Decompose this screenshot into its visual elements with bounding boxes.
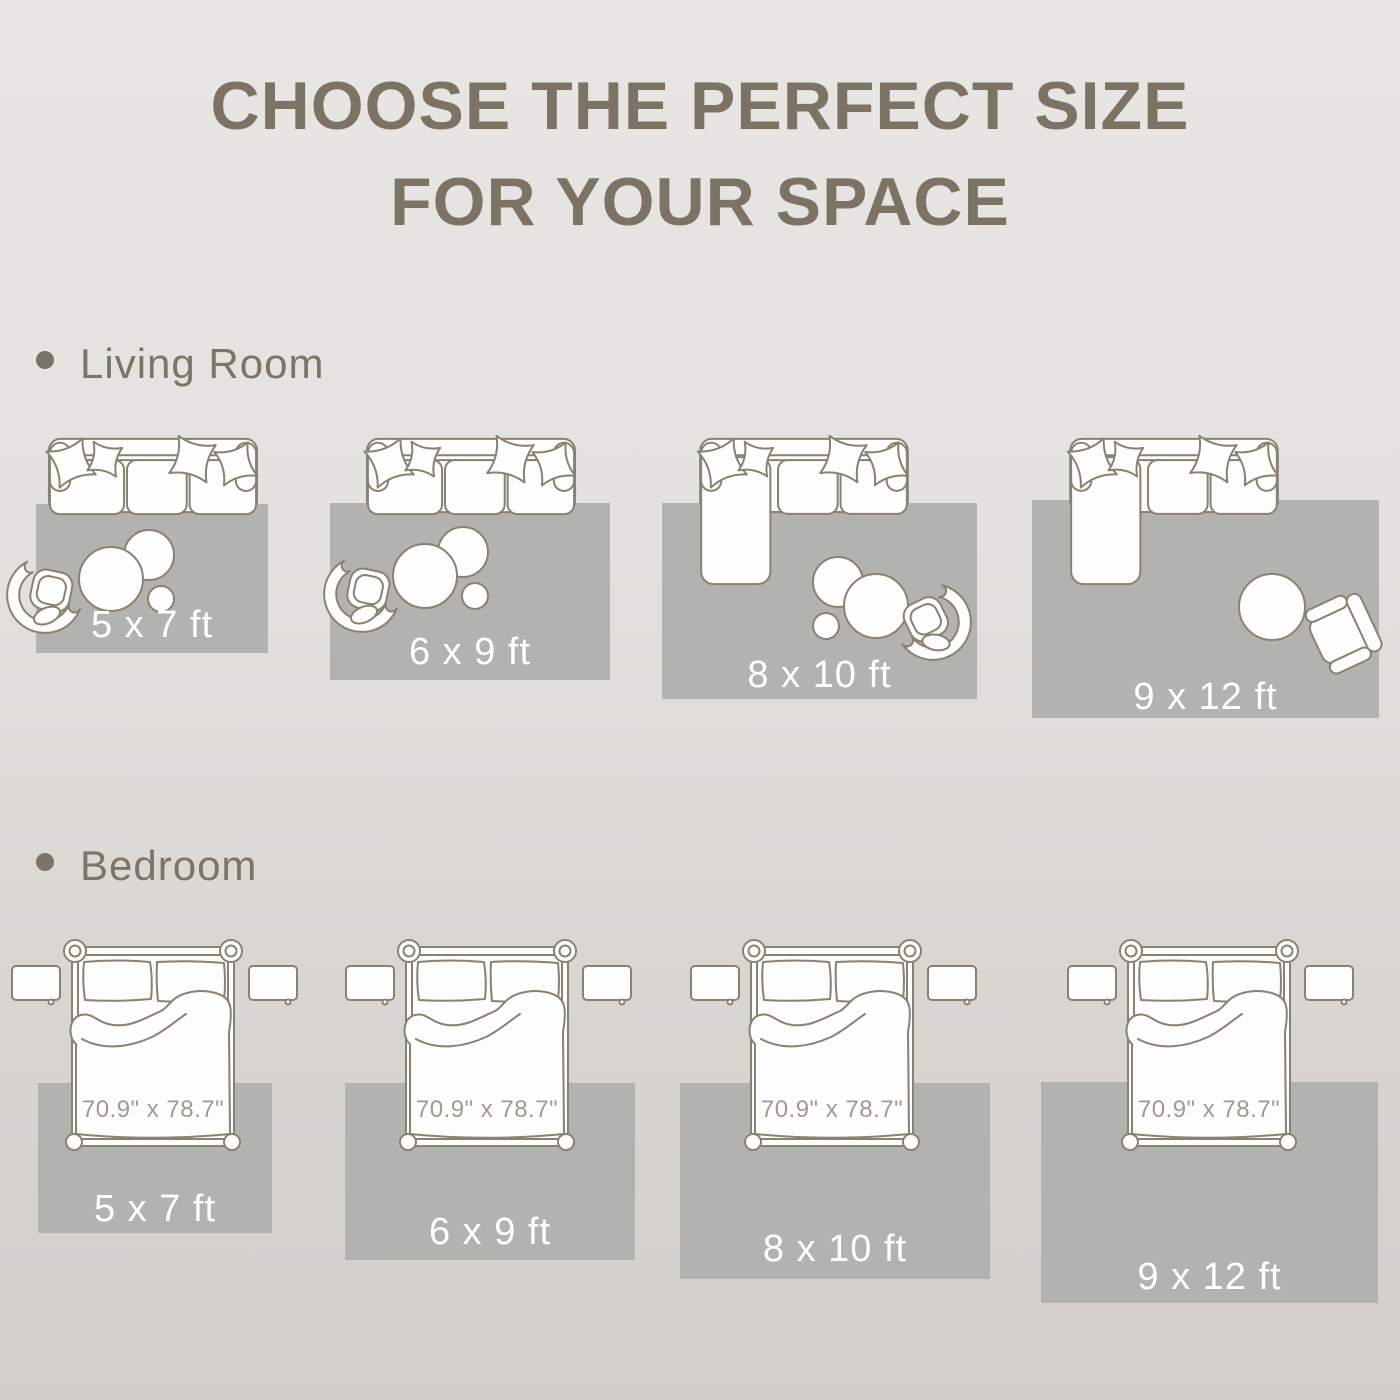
rug-size-label: 9 x 12 ft [1032,678,1379,716]
nightstand-icon [345,965,395,1005]
nightstand-icon [690,965,740,1005]
page-title: CHOOSE THE PERFECT SIZE FOR YOUR SPACE [0,58,1400,250]
rug-size-label: 6 x 9 ft [330,633,610,671]
page-title-line2: FOR YOUR SPACE [0,154,1400,250]
living-room-bullet-icon [36,351,54,369]
bed-size-label: 70.9" x 78.7" [402,1098,572,1122]
rug-size-label: 5 x 7 ft [36,606,268,644]
page-title-line1: CHOOSE THE PERFECT SIZE [0,58,1400,154]
bed-size-label: 70.9" x 78.7" [68,1098,238,1122]
infographic-canvas: CHOOSE THE PERFECT SIZE FOR YOUR SPACE L… [0,0,1400,1400]
rug-size-label: 8 x 10 ft [680,1230,990,1268]
nightstand-icon [248,965,298,1005]
rug-size-label: 6 x 9 ft [345,1213,635,1251]
living-room-section-label: Living Room [80,340,324,388]
nightstand-icon [582,965,632,1005]
nightstand-icon [11,965,61,1005]
rug-size-label: 5 x 7 ft [38,1190,272,1228]
bed-size-label: 70.9" x 78.7" [747,1098,917,1122]
bed-size-label: 70.9" x 78.7" [1124,1098,1294,1122]
bedroom-section-label: Bedroom [80,842,257,890]
sofa-icon [365,437,577,516]
accent-chair-icon [313,545,410,642]
sofa-icon [47,437,259,516]
sectional-sofa-icon [1068,437,1280,586]
nightstand-icon [1304,965,1354,1005]
nightstand-icon [1067,965,1117,1005]
nightstand-icon [927,965,977,1005]
bedroom-bullet-icon [36,853,54,871]
rug-size-label: 9 x 12 ft [1041,1258,1378,1296]
rug-size-label: 8 x 10 ft [662,656,977,694]
